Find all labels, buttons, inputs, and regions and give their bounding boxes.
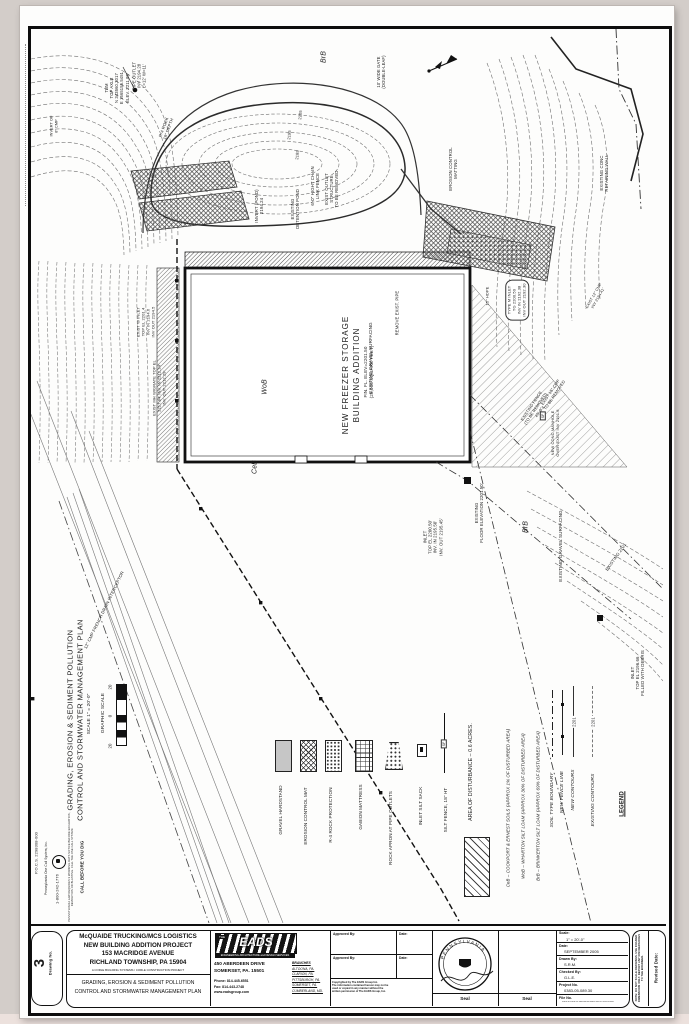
eads-tagline: ENGINEERING ARCHITECTURE and DESIGN SERV…: [215, 953, 295, 958]
building-title-line4: (25,000 SQUARE FEET): [369, 346, 375, 399]
plot-stamp: [25, 44, 26, 206]
legend-item-label: EROSION CONTROL MAT: [303, 787, 309, 844]
area-of-disturbance-swatch: [464, 837, 490, 897]
soil-label-wob: WoB: [262, 379, 271, 394]
legend-item-label: ROCK APRON AT PIPE OUTLETS: [388, 791, 394, 865]
retaining-wall-lines: [551, 29, 643, 209]
project-line4: RICHLAND TOWNSHIP, PA 15904: [66, 959, 210, 966]
legend-item-label: SILT FENCE, 18" HT: [443, 788, 449, 833]
divider: [498, 930, 499, 1006]
branch-item: CLARION, PA.: [292, 972, 314, 976]
w-inlet-callout: EXIST W INLET TOP EL 2201.4 INV IN 2194.…: [136, 307, 156, 338]
date-label: Date:: [399, 956, 407, 960]
building-outline: [185, 268, 470, 462]
north-arrow-icon: [427, 55, 457, 73]
project-line3: 153 MACRIDGE AVENUE: [66, 950, 210, 957]
title-block-separator: [28, 924, 666, 926]
divider: [210, 930, 211, 1006]
approved-by-label: Approved By:: [333, 932, 355, 936]
plan-title-line1: GRADING, EROSION & SEDIMENT POLLUTION: [65, 630, 74, 811]
legend-new-contours-label: NEW CONTOURS: [571, 769, 577, 810]
branch-item: SOMERSET, PA.: [292, 983, 317, 987]
invert-pond-label: INVERT (POND) 2194.24: [254, 189, 264, 222]
legend-soil-boundary-label: SOIL TYPE BOUNDARY: [550, 773, 556, 828]
tbm-callout: TBM TOP AXLE N 343560.3017 E 1665155.545…: [104, 72, 130, 104]
mh-grate-callout: EXIST MH W/GRATE TOP EL 2217.84' INV. IN…: [153, 360, 168, 416]
legend-gabion-swatch: [355, 740, 373, 772]
gravel-strip-top: [185, 252, 470, 268]
branches-title: BRANCHES: [292, 961, 311, 965]
soil-label-brb: BrB: [321, 51, 330, 63]
area-of-disturbance-label: AREA OF DISTURBANCE – 0.6 ACRES.: [468, 723, 474, 821]
checked-by-value: G.L.E.: [564, 975, 575, 980]
legend-item-label: GRAVEL HARDSTAND: [278, 785, 284, 834]
drawn-by-label: Drawn By:: [559, 957, 577, 961]
fence-dot: [561, 703, 564, 706]
seal-label: Seal: [498, 996, 556, 1001]
gravel-surfacing-label: EXISTING GRAVEL SURFACING: [558, 510, 564, 581]
site-plan-linework: [31, 29, 663, 923]
eads-logo-text: EADS: [216, 935, 296, 949]
retaining-wall-callout: EXISTING CONC RETAINING WALL: [599, 154, 609, 191]
contour-label: 2185: [295, 150, 301, 160]
drawing-number: 3: [31, 959, 49, 967]
branch-item: ALTOONA, PA.: [292, 967, 314, 971]
drawn-by-value: S.R.M.: [564, 962, 576, 967]
legend-erosion-mat-swatch: [300, 740, 317, 772]
divider: [498, 993, 556, 994]
divider: [648, 930, 649, 1006]
legend-item-label: GABION MATTRESS: [358, 784, 364, 829]
legend-new-contour-value: 2201: [571, 716, 576, 728]
firm-address1: 450 ABERDEEN DRIVE: [214, 961, 265, 966]
scale-tick: 20: [107, 685, 112, 690]
new-manhole-callout: NEW CONC MANHOLE OVER EXIST INV 2191.6: [551, 409, 561, 456]
inlet-marker: [464, 477, 471, 484]
inlet-marker: [597, 615, 603, 621]
project-line1: McQUAIDE TRUCKING/MCS LOGISTICS: [66, 933, 210, 940]
scale-tick: 20: [107, 744, 112, 749]
contour-label: 2205: [298, 110, 304, 120]
seal-label: Seal: [432, 996, 498, 1001]
contours-west: [38, 261, 148, 463]
legend-r4-swatch: [325, 740, 342, 772]
inlet-sack-core: [420, 747, 424, 752]
soil-label-brb: BrB: [523, 521, 532, 533]
call-before-dig-title: CALL BEFORE YOU DIG: [79, 841, 84, 894]
soil-label-ceb: CeB: [252, 460, 261, 474]
legend-soil-ceb: CeB – COOKPORT & ERNEST SOILS (APPROX 1%…: [505, 729, 510, 888]
branch-item: CUMBERLAND, MD.: [292, 989, 323, 993]
branch-item: PITTSBURGH, PA.: [292, 978, 320, 982]
file-no-value: 0383-05-089.30 GRADING EROSION PLAN.DWG: [562, 1001, 626, 1003]
invert-cmp-callout: INVERT OF 8" CMP: [49, 115, 58, 136]
dock-door: [355, 456, 367, 463]
graphic-scale-bar: [116, 684, 127, 746]
scale-value: 1" = 20'-0": [566, 937, 584, 942]
building-title-line2: BUILDING ADDITION: [352, 328, 362, 423]
firm-phone: Phone: 814-445-6551: [214, 979, 249, 983]
scale-tick: 0: [107, 715, 112, 718]
building-title-line3: FIN. FL. ELEV=2201.50: [363, 346, 369, 397]
pa-seal: PENNSYLVANIA: [433, 931, 497, 995]
type-m-inlet-callout: TYPE M INLET TG 2200.50 INV IN 2192.38 I…: [505, 279, 529, 320]
graphic-scale-label: GRAPHIC SCALE: [101, 693, 107, 733]
legend-fence-line-label: NEW FENCE LINE: [560, 771, 566, 813]
side-note: NOTE: DO NOT SCALE DRAWINGS. USE FIGURED…: [635, 933, 645, 1003]
sheet-title-line1: GRADING, EROSION & SEDIMENT POLLUTION: [66, 980, 210, 986]
legend-existing-contour-value: 2201: [590, 716, 595, 728]
project-no-label: Project No.: [559, 983, 578, 987]
one-call-org: Pennsylvania One Call System, Inc.: [45, 841, 49, 895]
building-title-line1: NEW FREEZER STORAGE: [341, 316, 351, 434]
copyright-note: Copyrighted by The EADS Group Inc. The i…: [332, 981, 430, 993]
divider: [396, 930, 397, 978]
dock-door: [295, 456, 307, 463]
sheet-title-line2: CONTROL AND STORMWATER MANAGEMENT PLAN: [66, 989, 210, 995]
legend-existing-contours-label: EXISTING CONTOURS: [591, 774, 597, 827]
divider: [330, 930, 331, 1006]
project-line5: A CORLE BUILDING SYSTEMS / CORLE CONSTRU…: [66, 968, 210, 972]
erosion-matting-callout: EROSION CONTROL MATTING: [448, 147, 458, 191]
date-label: Date:: [399, 932, 407, 936]
keystone-icon: [459, 959, 471, 968]
legend-soil-boundary-sample: [552, 690, 553, 757]
divider: [66, 974, 210, 975]
project-line2: NEW BUILDING ADDITION PROJECT: [66, 942, 210, 949]
revised-date-label: Revised Date:: [653, 953, 658, 983]
fence-dot: [561, 735, 564, 738]
pocs-serial: P.O.C.S. 2298308-000: [35, 832, 40, 874]
inlet-debris-callout: INLET TOP EL 2196.66 FILLED WITH DEBRIS: [630, 650, 646, 696]
scanned-drawing-sheet: TBM TOP AXLE N 343560.3017 E 1665155.545…: [0, 0, 689, 1024]
divider: [330, 954, 432, 955]
detention-pond-label: EXISTING DETENTION POND: [290, 189, 300, 229]
firm-address2: SOMERSET, PA. 15501: [214, 968, 264, 973]
remove-pipe-callout: REMOVE EXIST. PIPE: [394, 291, 399, 336]
outlet-removed-callout: EXIST OUTLET STRUCTURE TO BE REMOVED: [324, 170, 340, 207]
date-label: Date:: [559, 944, 568, 948]
legend-item-label: R-4 ROCK PROTECTION: [328, 787, 334, 842]
drawing-number-label: Drawing No.: [49, 951, 54, 975]
inlet-bottom-callout: INLET TOP EL 2200.50' INV. IN 2195.50' I…: [423, 518, 444, 555]
legend-soil-wob: WoB – WHARTON SILT LOAM (APPROX 30% OF D…: [520, 733, 525, 878]
legend-gravel-swatch: [275, 740, 292, 772]
date-value: SEPTEMBER 2005: [564, 949, 599, 954]
plan-title-line2: CONTROL AND STORMWATER MANAGEMENT PLAN: [75, 619, 84, 821]
firm-web: www.eadsgroup.com: [214, 990, 249, 994]
legend-title: LEGEND: [619, 791, 626, 817]
firm-fax: Fax: 814-443-2748: [214, 985, 244, 989]
call-before-dig-body: PENNSYLVANIA LAW REQUIRES 3 WORKING DAYS…: [68, 808, 74, 926]
chain-fence-callout: 6'-0" HIGHT CHAIN LINK FENCE: [310, 166, 320, 205]
eads-logo: THE EADS: [215, 933, 297, 954]
file-no-label: File No.: [559, 996, 572, 1000]
sf-tag: SF: [540, 412, 546, 421]
legend-fence-line-sample: [562, 690, 563, 755]
legend-soil-brb: BrB – BRINKERTON SILT LOAM (APPROX 69% O…: [535, 731, 540, 881]
gabion-channel: [131, 161, 249, 231]
approved-by-label: Approved By:: [333, 956, 355, 960]
pipe-outlet-callout: PIPE OUTLET INV 2194.28 L=12' W=11': [131, 62, 146, 90]
one-call-phone: 1-800-242-1776: [56, 874, 61, 904]
scale-note: SCALE 1" = 20'-0": [87, 694, 93, 735]
legend-item-label: INLET SILT SACK: [418, 787, 424, 826]
wide-gate-callout: 10' WIDE GATE (DOUBLE-LEAF): [376, 55, 386, 88]
legend-silt-fence-sf: SF: [441, 740, 447, 749]
scale-label: Scale:: [559, 931, 570, 935]
divider: [432, 993, 498, 994]
one-call-logo-core: [56, 859, 60, 863]
checked-by-label: Checked By:: [559, 970, 581, 974]
hdpe-label: 15" HDPE: [486, 287, 491, 306]
contour-label: 2195: [287, 130, 293, 140]
floor-elev-callout: EXISTING FLOOR ELEVATION 2201.50': [474, 483, 484, 542]
divider: [330, 978, 432, 979]
project-no-value: 0383-05-089.30: [564, 988, 592, 993]
